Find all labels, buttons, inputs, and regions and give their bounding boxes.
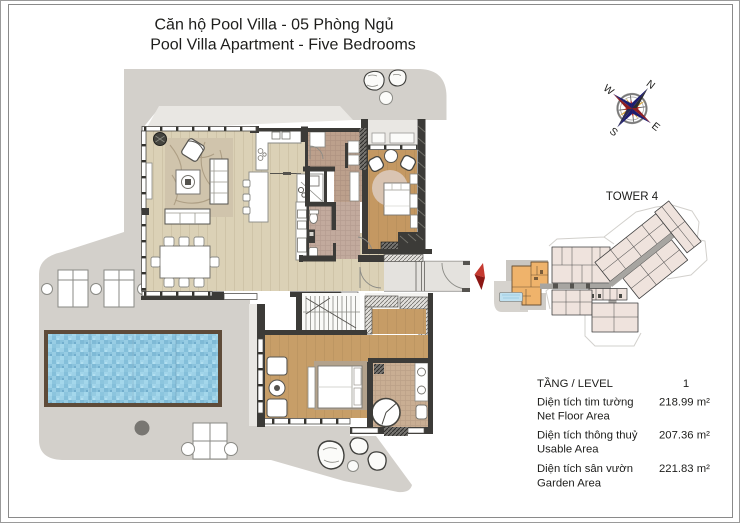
svg-text:Diện tích sân vườn: Diện tích sân vườn	[537, 463, 633, 475]
svg-text:Diện tích tim tường: Diện tích tim tường	[537, 397, 634, 409]
svg-text:TẦNG / LEVEL: TẦNG / LEVEL	[537, 377, 613, 390]
svg-text:Garden Area: Garden Area	[537, 478, 602, 490]
svg-text:Căn hộ Pool Villa - 05 Phòng N: Căn hộ Pool Villa - 05 Phòng Ngủ	[155, 17, 394, 34]
svg-text:Diện tích thông thuỷ: Diện tích thông thuỷ	[537, 430, 638, 442]
svg-text:218.99 m²: 218.99 m²	[659, 397, 710, 409]
svg-text:221.83 m²: 221.83 m²	[659, 463, 710, 475]
svg-text:TOWER 4: TOWER 4	[606, 191, 659, 203]
svg-text:Usable Area: Usable Area	[537, 444, 599, 456]
svg-text:Pool Villa Apartment - Five Be: Pool Villa Apartment - Five Bedrooms	[150, 37, 416, 54]
svg-text:207.36 m²: 207.36 m²	[659, 430, 710, 442]
svg-text:Net Floor Area: Net Floor Area	[537, 411, 611, 423]
svg-text:1: 1	[683, 378, 689, 390]
